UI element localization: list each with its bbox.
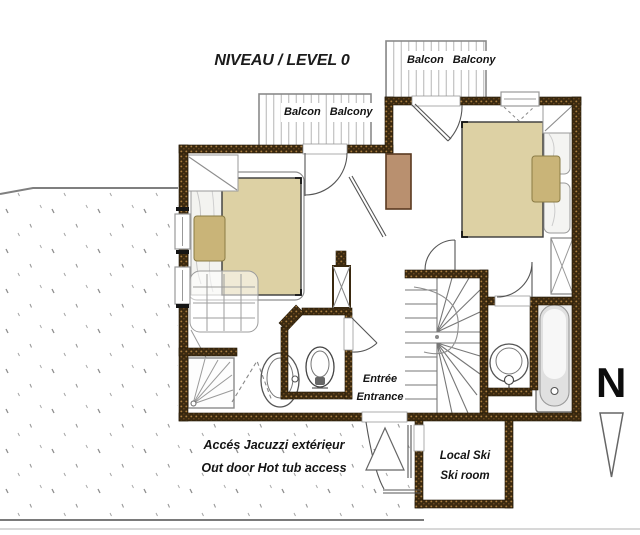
- entrance-label: Entrée Entrance: [346, 371, 414, 406]
- north-arrow-icon: [600, 413, 623, 477]
- bathtub: [536, 300, 573, 412]
- shower: [188, 358, 234, 408]
- north-label: N: [596, 362, 626, 404]
- balcony-right-label: Balcon Balcony: [404, 51, 472, 70]
- floor-plan: NIVEAU / LEVEL 0 Balcon Balcony Balcon B…: [0, 0, 640, 535]
- structural-post: [333, 266, 350, 308]
- chimney: [386, 154, 411, 209]
- corner-closet-right: [543, 104, 573, 133]
- page-title: NIVEAU / LEVEL 0: [208, 52, 356, 70]
- ski-room-label: Local Ski Ski room: [428, 447, 502, 486]
- toilet: [306, 347, 334, 388]
- balcony-top-right: [386, 41, 486, 99]
- bed-right: [462, 122, 570, 237]
- corner-closet-left: [188, 155, 238, 191]
- wardrobe: [551, 238, 573, 294]
- balcony-left-label: Balcon Balcony: [281, 103, 349, 122]
- jacuzzi-access-label: Accés Jacuzzi extérieur Out door Hot tub…: [186, 434, 362, 480]
